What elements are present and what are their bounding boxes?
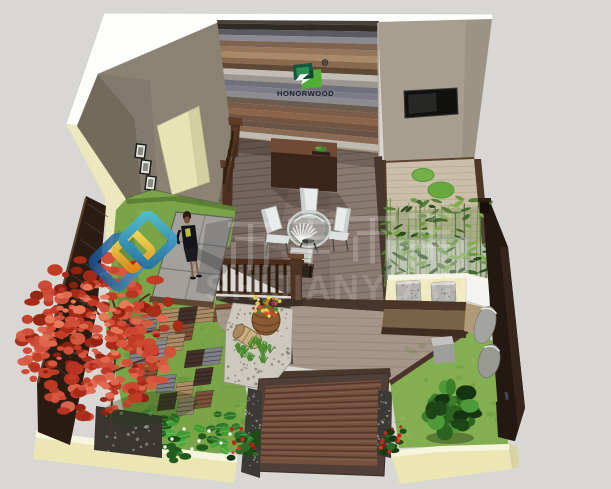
svg-text:SHIJIANYUAN: SHIJIANYUAN	[205, 267, 471, 308]
svg-text:HONORWOOD: HONORWOOD	[277, 89, 334, 98]
